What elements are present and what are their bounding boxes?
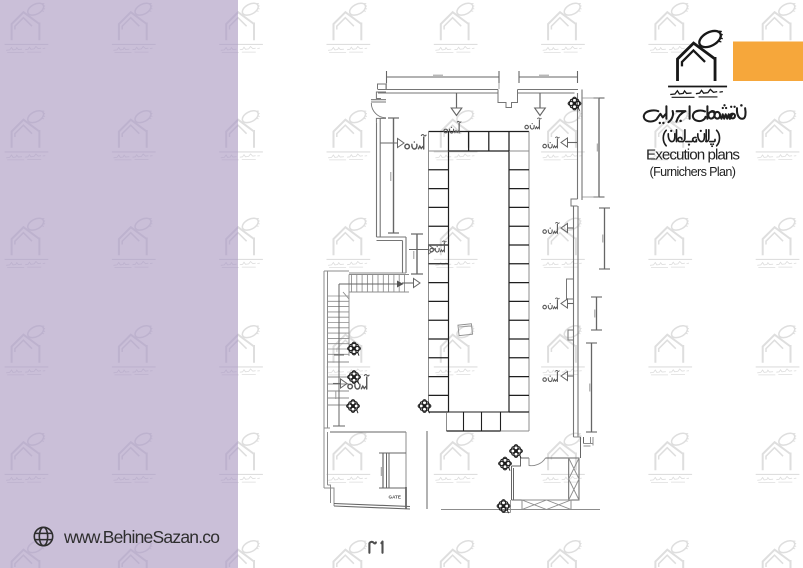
- svg-text:Execution plans: Execution plans: [646, 147, 740, 164]
- svg-text:(Furnichers Plan): (Furnichers Plan): [650, 165, 737, 179]
- svg-text:GATE: GATE: [389, 495, 401, 500]
- svg-text:www.BehineSazan.co: www.BehineSazan.co: [63, 527, 220, 547]
